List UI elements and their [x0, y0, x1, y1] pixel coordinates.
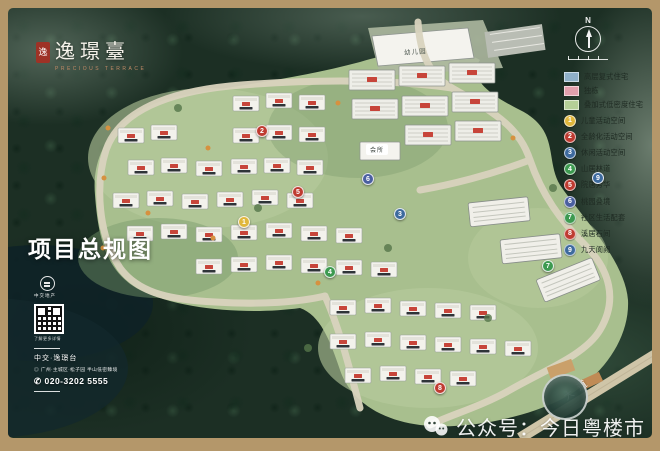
compass-north-label: N — [560, 16, 616, 25]
legend-marker-item: 3休闲活动空间 — [564, 147, 650, 159]
legend-label: 溪居石间 — [581, 229, 611, 239]
legend-label: 儿童活动空间 — [581, 116, 625, 126]
masterplan-map: 逸 逸璟臺 PRECIOUS TERRACE 项目总规图 中交地产 了解更多详情… — [8, 8, 652, 438]
legend-marker-item: 5院居芳华 — [564, 179, 650, 191]
legend: 高层复式住宅 独栋 叠加式低密度住宅 1儿童活动空间 2全龄化活动空间 3休闲活… — [564, 72, 650, 260]
map-marker-4: 4 — [324, 266, 336, 278]
legend-area-type: 叠加式低密度住宅 — [564, 100, 650, 110]
developer-logo-caption: 中交地产 — [34, 293, 132, 299]
legend-marker-badge: 4 — [564, 163, 576, 175]
map-marker-7: 7 — [542, 260, 554, 272]
legend-swatch — [564, 72, 579, 82]
address-text: 广州·主城区·松子园 半山低密臻境 — [41, 368, 118, 373]
developer-contact-block: 中交地产 了解更多详情 中交·逸璟台 ◎ 广州·主城区·松子园 半山低密臻境 ✆… — [32, 276, 132, 396]
location-icon: ◎ — [34, 368, 39, 373]
legend-area-type: 高层复式住宅 — [564, 72, 650, 82]
map-marker-8: 8 — [434, 382, 446, 394]
project-name-line: 中交·逸璟台 — [34, 353, 132, 363]
phone-line: ✆ 020-3202 5555 — [34, 376, 132, 387]
wechat-icon — [422, 415, 449, 438]
qr-code — [34, 304, 64, 334]
watermark: 公众号：今日粤楼市 — [422, 412, 645, 438]
watermark-text: 公众号：今日粤楼市 — [456, 412, 645, 438]
developer-logo-icon — [40, 276, 55, 291]
map-marker-1: 1 — [238, 216, 250, 228]
page-title: 项目总规图 — [28, 230, 153, 264]
divider — [34, 391, 60, 392]
legend-label: 桃园叠境 — [581, 197, 611, 207]
legend-marker-item: 4山居林道 — [564, 163, 650, 175]
legend-marker-item: 1儿童活动空间 — [564, 115, 650, 127]
project-logo-subtitle: PRECIOUS TERRACE — [55, 66, 146, 72]
legend-label: 独栋 — [584, 86, 599, 96]
legend-label: 社区生活配套 — [581, 213, 625, 223]
legend-marker-item: 7社区生活配套 — [564, 212, 650, 224]
phone-number: 020-3202 5555 — [45, 376, 109, 386]
legend-marker-badge: 2 — [564, 131, 576, 143]
legend-marker-item: 8溪居石间 — [564, 228, 650, 240]
legend-area-type: 独栋 — [564, 86, 650, 96]
legend-label: 叠加式低密度住宅 — [584, 100, 643, 110]
project-logo: 逸 逸璟臺 PRECIOUS TERRACE — [36, 42, 146, 72]
qr-code-pattern — [36, 306, 62, 332]
map-marker-2: 2 — [256, 125, 268, 137]
legend-marker-badge: 5 — [564, 179, 576, 191]
poster-frame: 逸 逸璟臺 PRECIOUS TERRACE 项目总规图 中交地产 了解更多详情… — [0, 0, 660, 451]
legend-label: 休闲活动空间 — [581, 148, 625, 158]
map-marker-6: 6 — [362, 173, 374, 185]
legend-marker-item: 9九天阆阙 — [564, 244, 650, 256]
legend-label: 高层复式住宅 — [584, 72, 628, 82]
scale-bar — [568, 56, 608, 60]
logo-seal-icon: 逸 — [36, 42, 50, 63]
address-line: ◎ 广州·主城区·松子园 半山低密臻境 — [34, 366, 132, 373]
kindergarten-label: 幼儿园 — [404, 45, 427, 57]
legend-label: 九天阆阙 — [581, 245, 611, 255]
project-logo-name: 逸璟臺 — [55, 42, 146, 63]
clubhouse-label: 会所 — [366, 144, 388, 155]
legend-marker-badge: 9 — [564, 244, 576, 256]
compass: N — [560, 16, 616, 60]
divider — [34, 348, 60, 349]
legend-marker-badge: 6 — [564, 196, 576, 208]
legend-marker-badge: 3 — [564, 147, 576, 159]
legend-marker-badge: 7 — [564, 212, 576, 224]
legend-marker-item: 2全龄化活动空间 — [564, 131, 650, 143]
map-marker-5: 5 — [292, 186, 304, 198]
map-marker-9: 9 — [592, 172, 604, 184]
phone-icon: ✆ — [34, 376, 42, 386]
legend-swatch — [564, 86, 579, 96]
legend-label: 全龄化活动空间 — [581, 132, 633, 142]
legend-marker-badge: 8 — [564, 228, 576, 240]
legend-marker-badge: 1 — [564, 115, 576, 127]
qr-caption: 了解更多详情 — [34, 336, 132, 342]
legend-swatch — [564, 100, 579, 110]
compass-needle-icon — [575, 26, 601, 52]
map-marker-3: 3 — [394, 208, 406, 220]
legend-marker-item: 6桃园叠境 — [564, 196, 650, 208]
